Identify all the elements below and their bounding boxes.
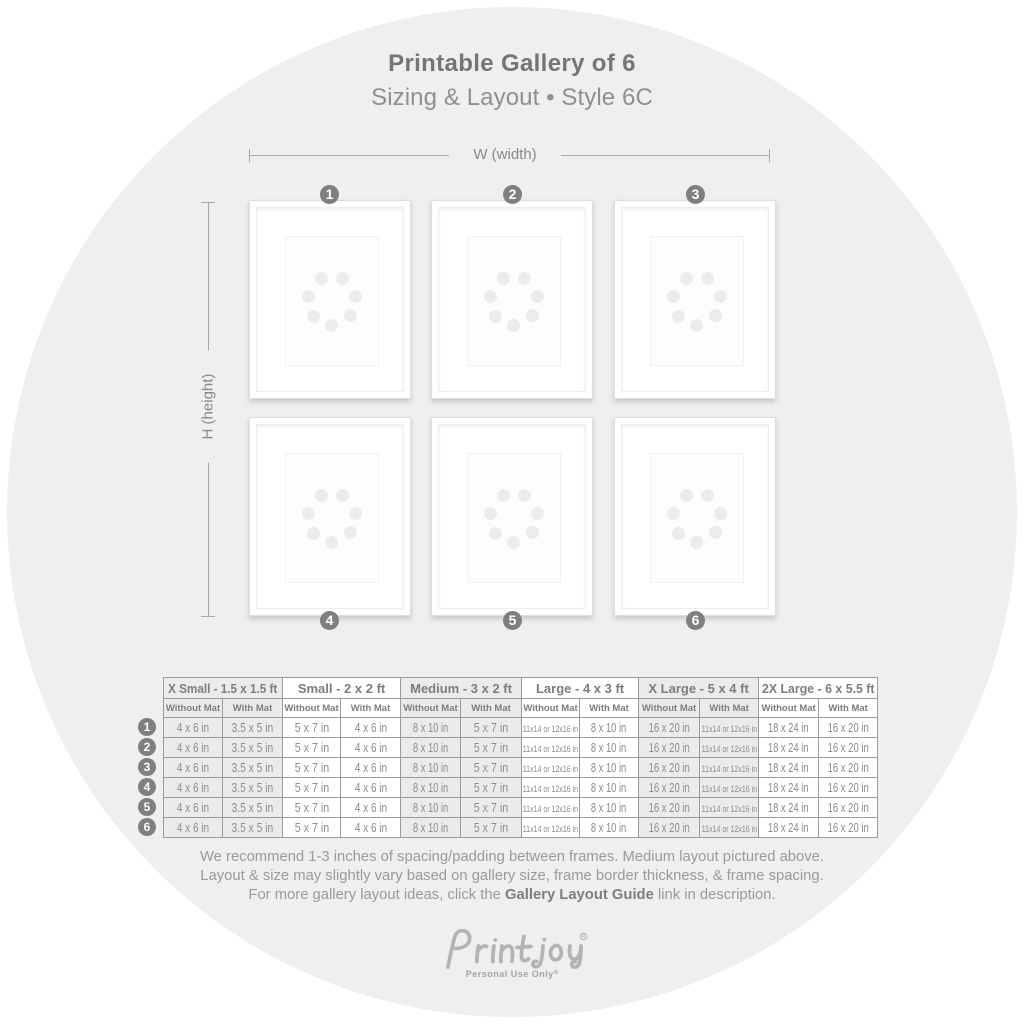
svg-text:R: R bbox=[581, 935, 586, 941]
